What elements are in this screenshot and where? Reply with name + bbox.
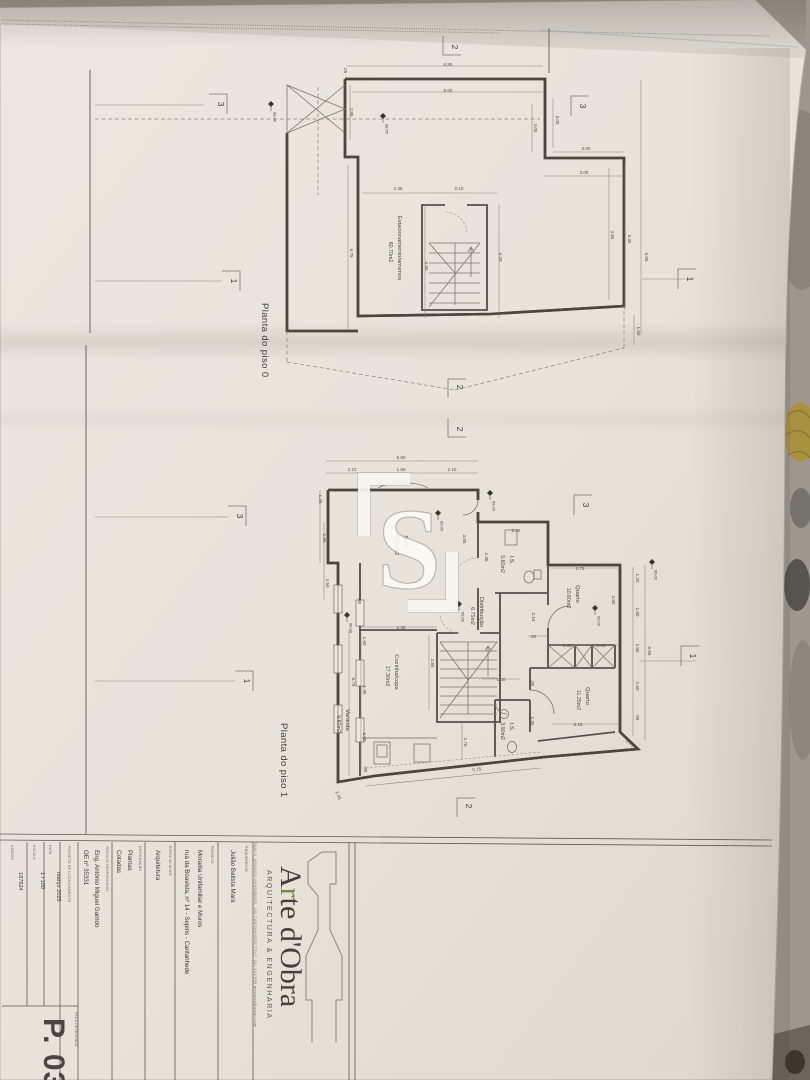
- dimension-label: .95: [530, 680, 535, 687]
- room-name: Estacionamento/arrumos: [396, 216, 402, 281]
- dimension-label: .80: [530, 634, 537, 639]
- section-marker: 2: [450, 45, 460, 50]
- dimension-label: 1.35: [563, 643, 572, 648]
- section-marker: 3: [235, 514, 245, 519]
- plan-title-label: Planta do piso 0: [259, 303, 270, 378]
- title-block-field-value: rua da Boavista, nº 14 - Sepins - Cantan…: [183, 850, 190, 975]
- dimension-label: 1.75: [463, 738, 468, 747]
- dimension-label: 1.60: [322, 534, 327, 543]
- dimension-label: 3.85: [462, 535, 467, 544]
- level-value: 98.90: [349, 623, 354, 634]
- title-block-field-value: 1 / 100: [39, 872, 45, 889]
- dimension-label: 3.00: [555, 116, 560, 125]
- dimension-label: 1.60: [362, 637, 367, 646]
- title-block-field-value: Cotadas: [115, 850, 122, 873]
- dimension-label: 6.85: [644, 253, 649, 262]
- level-value: 99.00: [461, 612, 466, 623]
- level-value: 99.00: [492, 501, 497, 512]
- dimension-label: 1.50: [325, 579, 330, 588]
- section-marker: 1: [242, 679, 252, 684]
- dimension-label: 5.80: [397, 455, 406, 460]
- title-block-field-label: CÓDIGO: [10, 845, 15, 860]
- dimension-label: .25: [343, 67, 348, 74]
- room-area: 6.75m2: [469, 607, 475, 625]
- section-marker: 2: [455, 385, 465, 390]
- dimension-label: 6.85: [444, 62, 453, 67]
- dimension-label: 1.50: [635, 644, 640, 653]
- room-name: I.S.: [508, 723, 514, 732]
- room-area: 17.30m2: [384, 666, 390, 687]
- title-block-field-label: ESCALA: [32, 845, 36, 860]
- title-block-field-value: Moradia Unifamiliar e Muros: [196, 850, 203, 927]
- section-marker: 3: [581, 503, 591, 508]
- dimension-label: .80: [357, 598, 362, 605]
- dimension-label: 3.00: [580, 170, 589, 175]
- dimension-label: 1.00: [597, 643, 606, 648]
- piece-number: P. 03: [37, 1018, 70, 1080]
- dimension-label: 2.10: [348, 467, 357, 472]
- dimension-label: 2.10: [455, 186, 464, 191]
- dimension-label: 4.85: [610, 231, 615, 240]
- dimension-label: 2.80: [611, 596, 616, 605]
- title-block-field-value: OE nº 35331: [82, 850, 89, 886]
- room-name: Quarto: [574, 585, 580, 603]
- dimension-label: 5.35: [627, 235, 632, 244]
- room-area: 11.25m2: [575, 690, 581, 710]
- logo-address: RUA D. AFONSO HENRIQUES, 102 CANTANHEDE …: [253, 843, 257, 1028]
- dimension-label: 1.50: [636, 327, 641, 336]
- title-block-field-label: DATA: [48, 845, 52, 855]
- right-curl-shadow: [690, 48, 790, 1080]
- dimension-label: 1.20: [635, 574, 640, 583]
- room-name: I.S.: [508, 556, 514, 565]
- dimension-label: 2.85: [349, 108, 354, 117]
- dimension-label: 6.60: [444, 88, 453, 93]
- room-name: Distribuição: [478, 597, 484, 627]
- section-marker: 1: [229, 279, 239, 284]
- dimension-label: 1.60: [397, 467, 406, 472]
- room-name: Quarto: [584, 687, 590, 705]
- dimension-label: 4.20: [498, 253, 503, 262]
- dimension-label: 2.85: [430, 659, 435, 668]
- photographed-architectural-drawing: Planta do piso 06.85.256.602.853.003.003…: [0, 0, 810, 1080]
- dimension-label: 6.85: [647, 647, 652, 656]
- title-block-field-value: Plantas: [126, 850, 133, 871]
- dimension-label: 1.00: [497, 677, 506, 682]
- dimension-label: 2.35: [484, 553, 489, 562]
- dimension-label: 5.75: [472, 767, 482, 773]
- dimension-label: 3.15: [574, 722, 583, 727]
- title-block-field-value: 187624: [17, 872, 23, 891]
- room-area: 9.60m2: [335, 715, 341, 733]
- crease-band-2: [0, 406, 785, 432]
- dimension-label: 2.10: [531, 613, 536, 622]
- top-fold-shadow: [0, 0, 806, 48]
- dimension-label: 6.75: [349, 249, 354, 258]
- dimension-label: .95: [635, 714, 640, 721]
- drawing-sheet-photo: Planta do piso 06.85.256.602.853.003.003…: [0, 0, 810, 1080]
- level-value: 98.40: [273, 112, 278, 123]
- crease-band: [0, 322, 785, 362]
- title-block-field-label: TÉCNICO RESPONSÁVEL: [105, 846, 110, 892]
- dimension-label: 2.35: [512, 528, 521, 533]
- watermark-letter: S: [377, 486, 441, 613]
- title-block-field-value: Julião Batista Marà: [229, 850, 236, 903]
- title-block-field-label: DESIGNAÇÃO: [138, 846, 143, 871]
- title-block-field-label: PROJETO: [210, 846, 214, 864]
- title-block-field-value: Eng. António Miguel Garrido: [93, 850, 100, 928]
- section-marker: 1: [685, 277, 695, 282]
- dimension-label: 2.35: [394, 186, 403, 191]
- logo-brand-name: Arte d'Obra: [274, 866, 307, 1007]
- dimension-label: 3.00: [582, 146, 591, 151]
- dimension-label: 1.95: [362, 686, 367, 695]
- room-area: 3.90m2: [499, 722, 505, 740]
- plan-title-label: Planta do piso 1: [278, 723, 289, 798]
- room-name: Cozinha/copa: [393, 654, 399, 690]
- section-marker: 2: [455, 427, 465, 432]
- section-marker: 3: [216, 102, 226, 107]
- logo-tagline: ARQUITECTURA & ENGENHARIA: [265, 870, 272, 1020]
- level-value: 99.00: [654, 570, 659, 581]
- dimension-label: 1.25: [318, 495, 323, 504]
- room-area: 10.60m2: [565, 588, 571, 609]
- dimension-label: 1.35: [530, 717, 535, 726]
- dimension-label: 3.00: [533, 124, 538, 133]
- watermark: S: [364, 479, 452, 613]
- dimension-label: 2.10: [448, 467, 457, 472]
- section-marker: 1: [688, 654, 698, 659]
- title-block-field-value: março 2025: [55, 872, 61, 902]
- dimension-label: 1.60: [635, 608, 640, 617]
- dimension-label: 1.60: [362, 733, 367, 742]
- room-area: 60.70m2: [387, 242, 393, 263]
- level-value: 98.55: [385, 124, 390, 135]
- room-name: Varanda: [344, 709, 350, 731]
- section-marker: 3: [578, 104, 588, 109]
- title-block-field-label: REQUERENTE: [244, 846, 248, 873]
- title-block-field-value: Arquitetura: [154, 850, 161, 881]
- title-block-field-label: PROJETO DE LICENCIAMENTO: [67, 846, 71, 902]
- level-value: 99.00: [597, 616, 602, 627]
- dimension-label: 2.35: [397, 625, 406, 630]
- dimension-label: 1.60: [635, 682, 640, 691]
- dimension-label: .80: [363, 766, 368, 773]
- title-block-field-label: ESPECIALIDADE: [168, 846, 172, 877]
- section-marker: 2: [464, 804, 474, 809]
- dimension-label: 2.75: [576, 566, 585, 571]
- room-area: 5.60m2: [499, 555, 505, 573]
- dimension-label: 4.50: [424, 262, 429, 271]
- piece-label: PEÇA DESENHADA: [74, 1012, 78, 1047]
- dimension-label: 6.75: [351, 678, 356, 687]
